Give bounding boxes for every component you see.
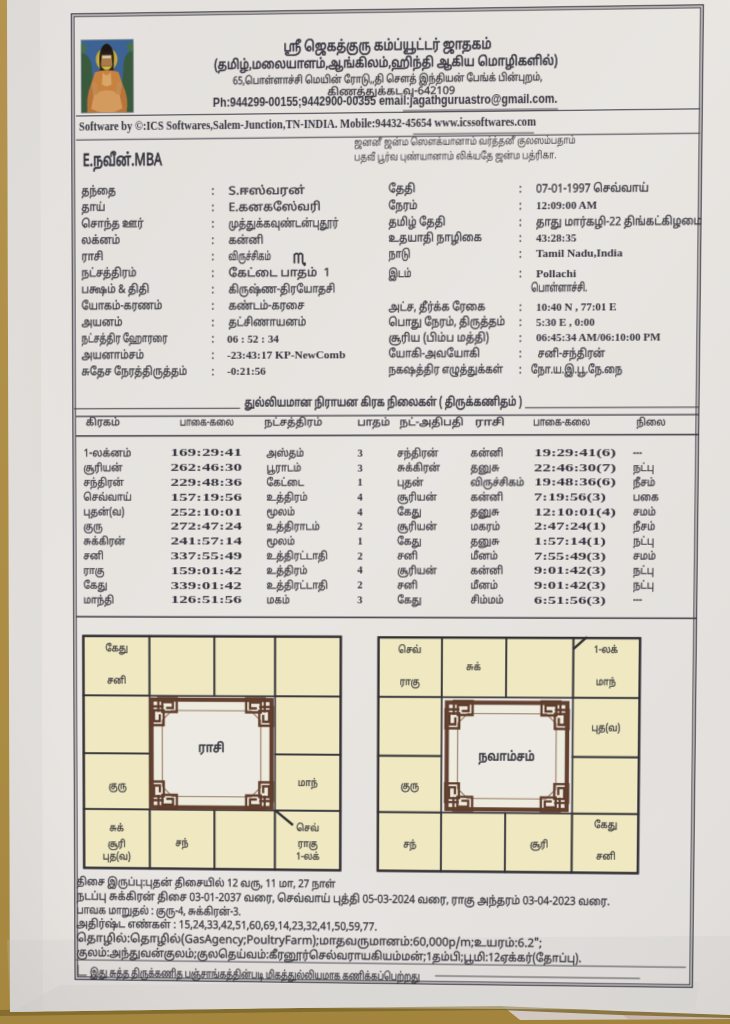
svg-text:2: 2 <box>357 522 362 533</box>
svg-text:252:10:01: 252:10:01 <box>171 507 242 518</box>
svg-text:159:01:42: 159:01:42 <box>171 566 242 577</box>
svg-text:1:57:14(1): 1:57:14(1) <box>534 537 607 548</box>
svg-text:169:29:41: 169:29:41 <box>171 448 243 459</box>
svg-text:5:30 E , 0:00: 5:30 E , 0:00 <box>536 316 595 329</box>
svg-text:43:28:35: 43:28:35 <box>536 232 577 245</box>
svg-text:19:29:41(6): 19:29:41(6) <box>534 448 617 459</box>
svg-text:126:51:56: 126:51:56 <box>171 595 242 606</box>
svg-text:2: 2 <box>357 581 362 592</box>
svg-text:229:48:36: 229:48:36 <box>171 478 242 489</box>
svg-text:272:47:24: 272:47:24 <box>171 522 244 533</box>
svg-text:4: 4 <box>357 507 363 518</box>
svg-text:22:46:30(7): 22:46:30(7) <box>534 463 617 474</box>
svg-text:-23:43:17 KP-NewComb: -23:43:17 KP-NewComb <box>227 349 345 362</box>
svg-text:3: 3 <box>357 595 362 606</box>
svg-text:7:19:56(3): 7:19:56(3) <box>534 492 607 503</box>
svg-text:Software by ©:ICS Softwares,Sa: Software by ©:ICS Softwares,Salem-Juncti… <box>79 115 536 134</box>
svg-text:12:09:00 AM: 12:09:00 AM <box>536 200 598 213</box>
svg-text:4: 4 <box>357 493 363 504</box>
svg-text:19:48:36(6): 19:48:36(6) <box>534 478 617 489</box>
svg-text:12:10:01(4): 12:10:01(4) <box>534 507 617 518</box>
svg-text:6:51:56(3): 6:51:56(3) <box>534 595 607 606</box>
svg-text:-0:21:56: -0:21:56 <box>227 366 266 378</box>
svg-text:7:55:49(3): 7:55:49(3) <box>534 551 607 562</box>
svg-text:4: 4 <box>357 566 363 577</box>
svg-text:241:57:14: 241:57:14 <box>171 537 244 548</box>
svg-text:2: 2 <box>357 551 362 562</box>
svg-text:9:01:42(3): 9:01:42(3) <box>534 581 607 592</box>
svg-text:3: 3 <box>357 463 362 474</box>
svg-text:262:46:30: 262:46:30 <box>171 463 243 474</box>
svg-text:Tamil Nadu,India: Tamil Nadu,India <box>536 249 623 261</box>
svg-text:1: 1 <box>357 537 362 548</box>
svg-text:06 : 52 : 34: 06 : 52 : 34 <box>227 333 279 345</box>
svg-text:Pollachi: Pollachi <box>536 269 576 280</box>
svg-text:3: 3 <box>357 448 362 459</box>
svg-text:339:01:42: 339:01:42 <box>171 581 242 592</box>
svg-text:06:45:34 AM/06:10:00 PM: 06:45:34 AM/06:10:00 PM <box>536 332 661 345</box>
svg-text:157:19:56: 157:19:56 <box>171 493 242 504</box>
svg-text:337:55:49: 337:55:49 <box>171 551 242 562</box>
svg-text:2:47:24(1): 2:47:24(1) <box>534 522 607 533</box>
svg-text:10:40 N , 77:01 E: 10:40 N , 77:01 E <box>536 301 617 314</box>
svg-text:1: 1 <box>357 478 362 489</box>
svg-text:9:01:42(3): 9:01:42(3) <box>534 566 607 577</box>
svg-text:Ph:944299-00155;9442900-00355: Ph:944299-00155;9442900-00355 email:jaga… <box>213 92 557 110</box>
